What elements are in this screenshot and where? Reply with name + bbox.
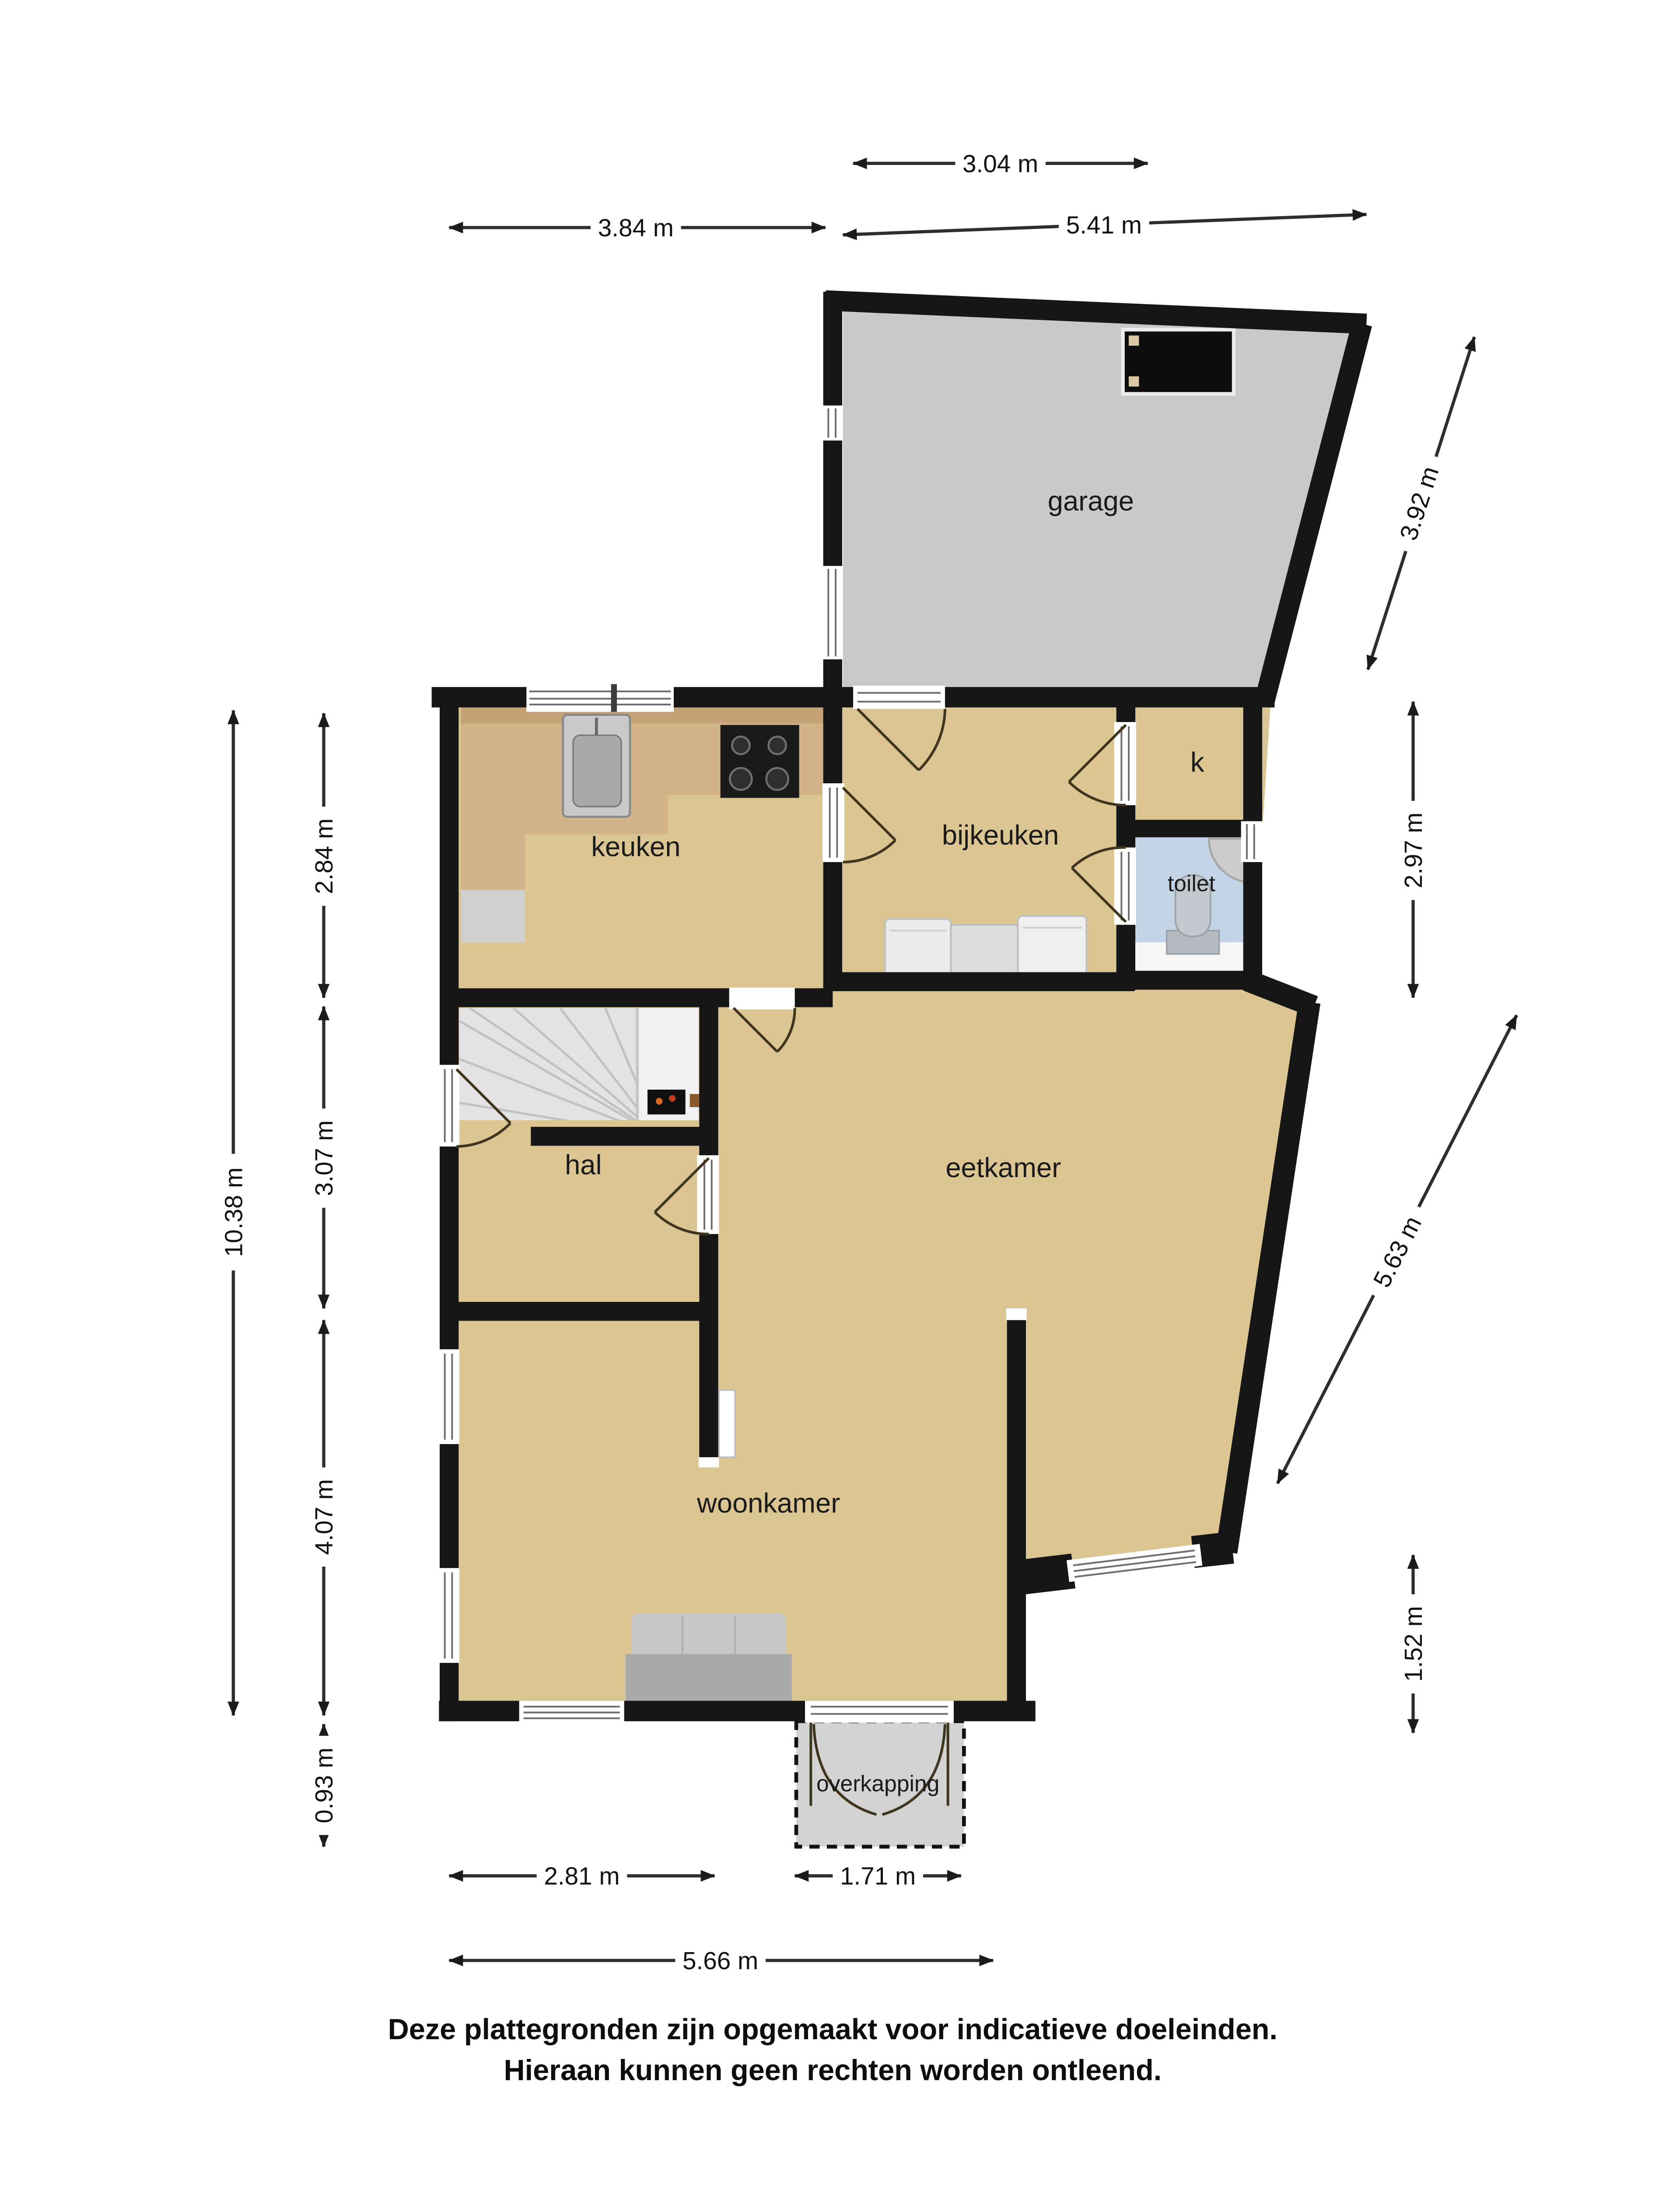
garage-left-window-small — [822, 406, 843, 441]
svg-text:0.93 m: 0.93 m — [311, 1747, 338, 1823]
wall-end-cap — [1006, 1308, 1027, 1320]
kitchen-fridge — [461, 890, 525, 942]
svg-text:10.38 m: 10.38 m — [220, 1168, 248, 1257]
disclaimer-line-1: Deze plattegronden zijn opgemaakt voor i… — [388, 2013, 1277, 2046]
bijkeuken-label: bijkeuken — [942, 820, 1059, 851]
floorplan-drawing: garage keuken bijkeuken k toilet hal eet… — [0, 0, 1680, 2188]
dimension-bottom-566: 5.66 m — [449, 1943, 993, 1978]
cooktop — [721, 725, 799, 798]
svg-text:5.41 m: 5.41 m — [1066, 211, 1142, 239]
svg-text:2.81 m: 2.81 m — [544, 1863, 619, 1890]
dimension-top-384: 3.84 m — [449, 210, 826, 245]
svg-text:3.04 m: 3.04 m — [962, 150, 1038, 178]
svg-text:4.07 m: 4.07 m — [311, 1479, 338, 1555]
dimension-bottom-171: 1.71 m — [795, 1858, 961, 1893]
keuken-top-window — [526, 684, 674, 712]
svg-text:3.84 m: 3.84 m — [598, 214, 674, 242]
dimension-top-541: 5.41 m — [843, 207, 1367, 242]
dimension-top-304: 3.04 m — [853, 146, 1148, 181]
toilet-right-window — [1241, 821, 1263, 862]
garage-dark-unit — [1123, 330, 1234, 394]
dimension-bottom-281: 2.81 m — [449, 1858, 715, 1893]
dimension-left-1038: 10.38 m — [216, 710, 251, 1715]
garage-label: garage — [1048, 486, 1134, 517]
woonkamer-label: woonkamer — [696, 1488, 840, 1519]
disclaimer-line-2: Hieraan kunnen geen rechten worden ontle… — [504, 2054, 1162, 2086]
overkapping-label: overkapping — [816, 1771, 939, 1796]
svg-text:1.71 m: 1.71 m — [840, 1863, 916, 1890]
garage-unit-corner-dot — [1129, 376, 1139, 386]
hal-label: hal — [565, 1150, 602, 1180]
garage-left-window-large — [822, 566, 843, 659]
garage-unit-corner-dot — [1129, 336, 1139, 346]
woonkamer-left-window-lower — [439, 1568, 459, 1663]
svg-text:1.52 m: 1.52 m — [1400, 1606, 1428, 1682]
woonkamer-bottom-window — [519, 1701, 624, 1723]
dimension-left-307: 3.07 m — [306, 1006, 341, 1308]
sink — [563, 715, 630, 817]
svg-text:5.66 m: 5.66 m — [682, 1947, 758, 1975]
dimension-right-152: 1.52 m — [1396, 1555, 1431, 1733]
dimension-left-407: 4.07 m — [306, 1320, 341, 1715]
svg-text:3.07 m: 3.07 m — [311, 1120, 338, 1196]
wall-end-cap — [699, 1457, 719, 1467]
k-label: k — [1190, 747, 1204, 778]
disclaimer: Deze plattegronden zijn opgemaakt voor i… — [388, 2013, 1277, 2086]
keuken-label: keuken — [591, 832, 680, 863]
stairs — [459, 1008, 699, 1136]
door-leaf-panel — [719, 1390, 735, 1457]
svg-text:2.97 m: 2.97 m — [1400, 813, 1428, 888]
dimension-right-563: 5.63 m — [1277, 1015, 1517, 1483]
svg-text:5.63 m: 5.63 m — [1368, 1212, 1427, 1292]
floorplan-page: garage keuken bijkeuken k toilet hal eet… — [0, 0, 1680, 2188]
dimension-right-297: 2.97 m — [1396, 701, 1431, 998]
toilet-label: toilet — [1168, 871, 1215, 896]
dimension-right-392: 3.92 m — [1368, 337, 1474, 670]
dimension-left-093: 0.93 m — [306, 1724, 341, 1847]
svg-text:2.84 m: 2.84 m — [311, 818, 338, 894]
dimension-left-284: 2.84 m — [306, 713, 341, 998]
eetkamer-label: eetkamer — [945, 1153, 1061, 1183]
woonkamer-left-window-upper — [439, 1349, 459, 1444]
